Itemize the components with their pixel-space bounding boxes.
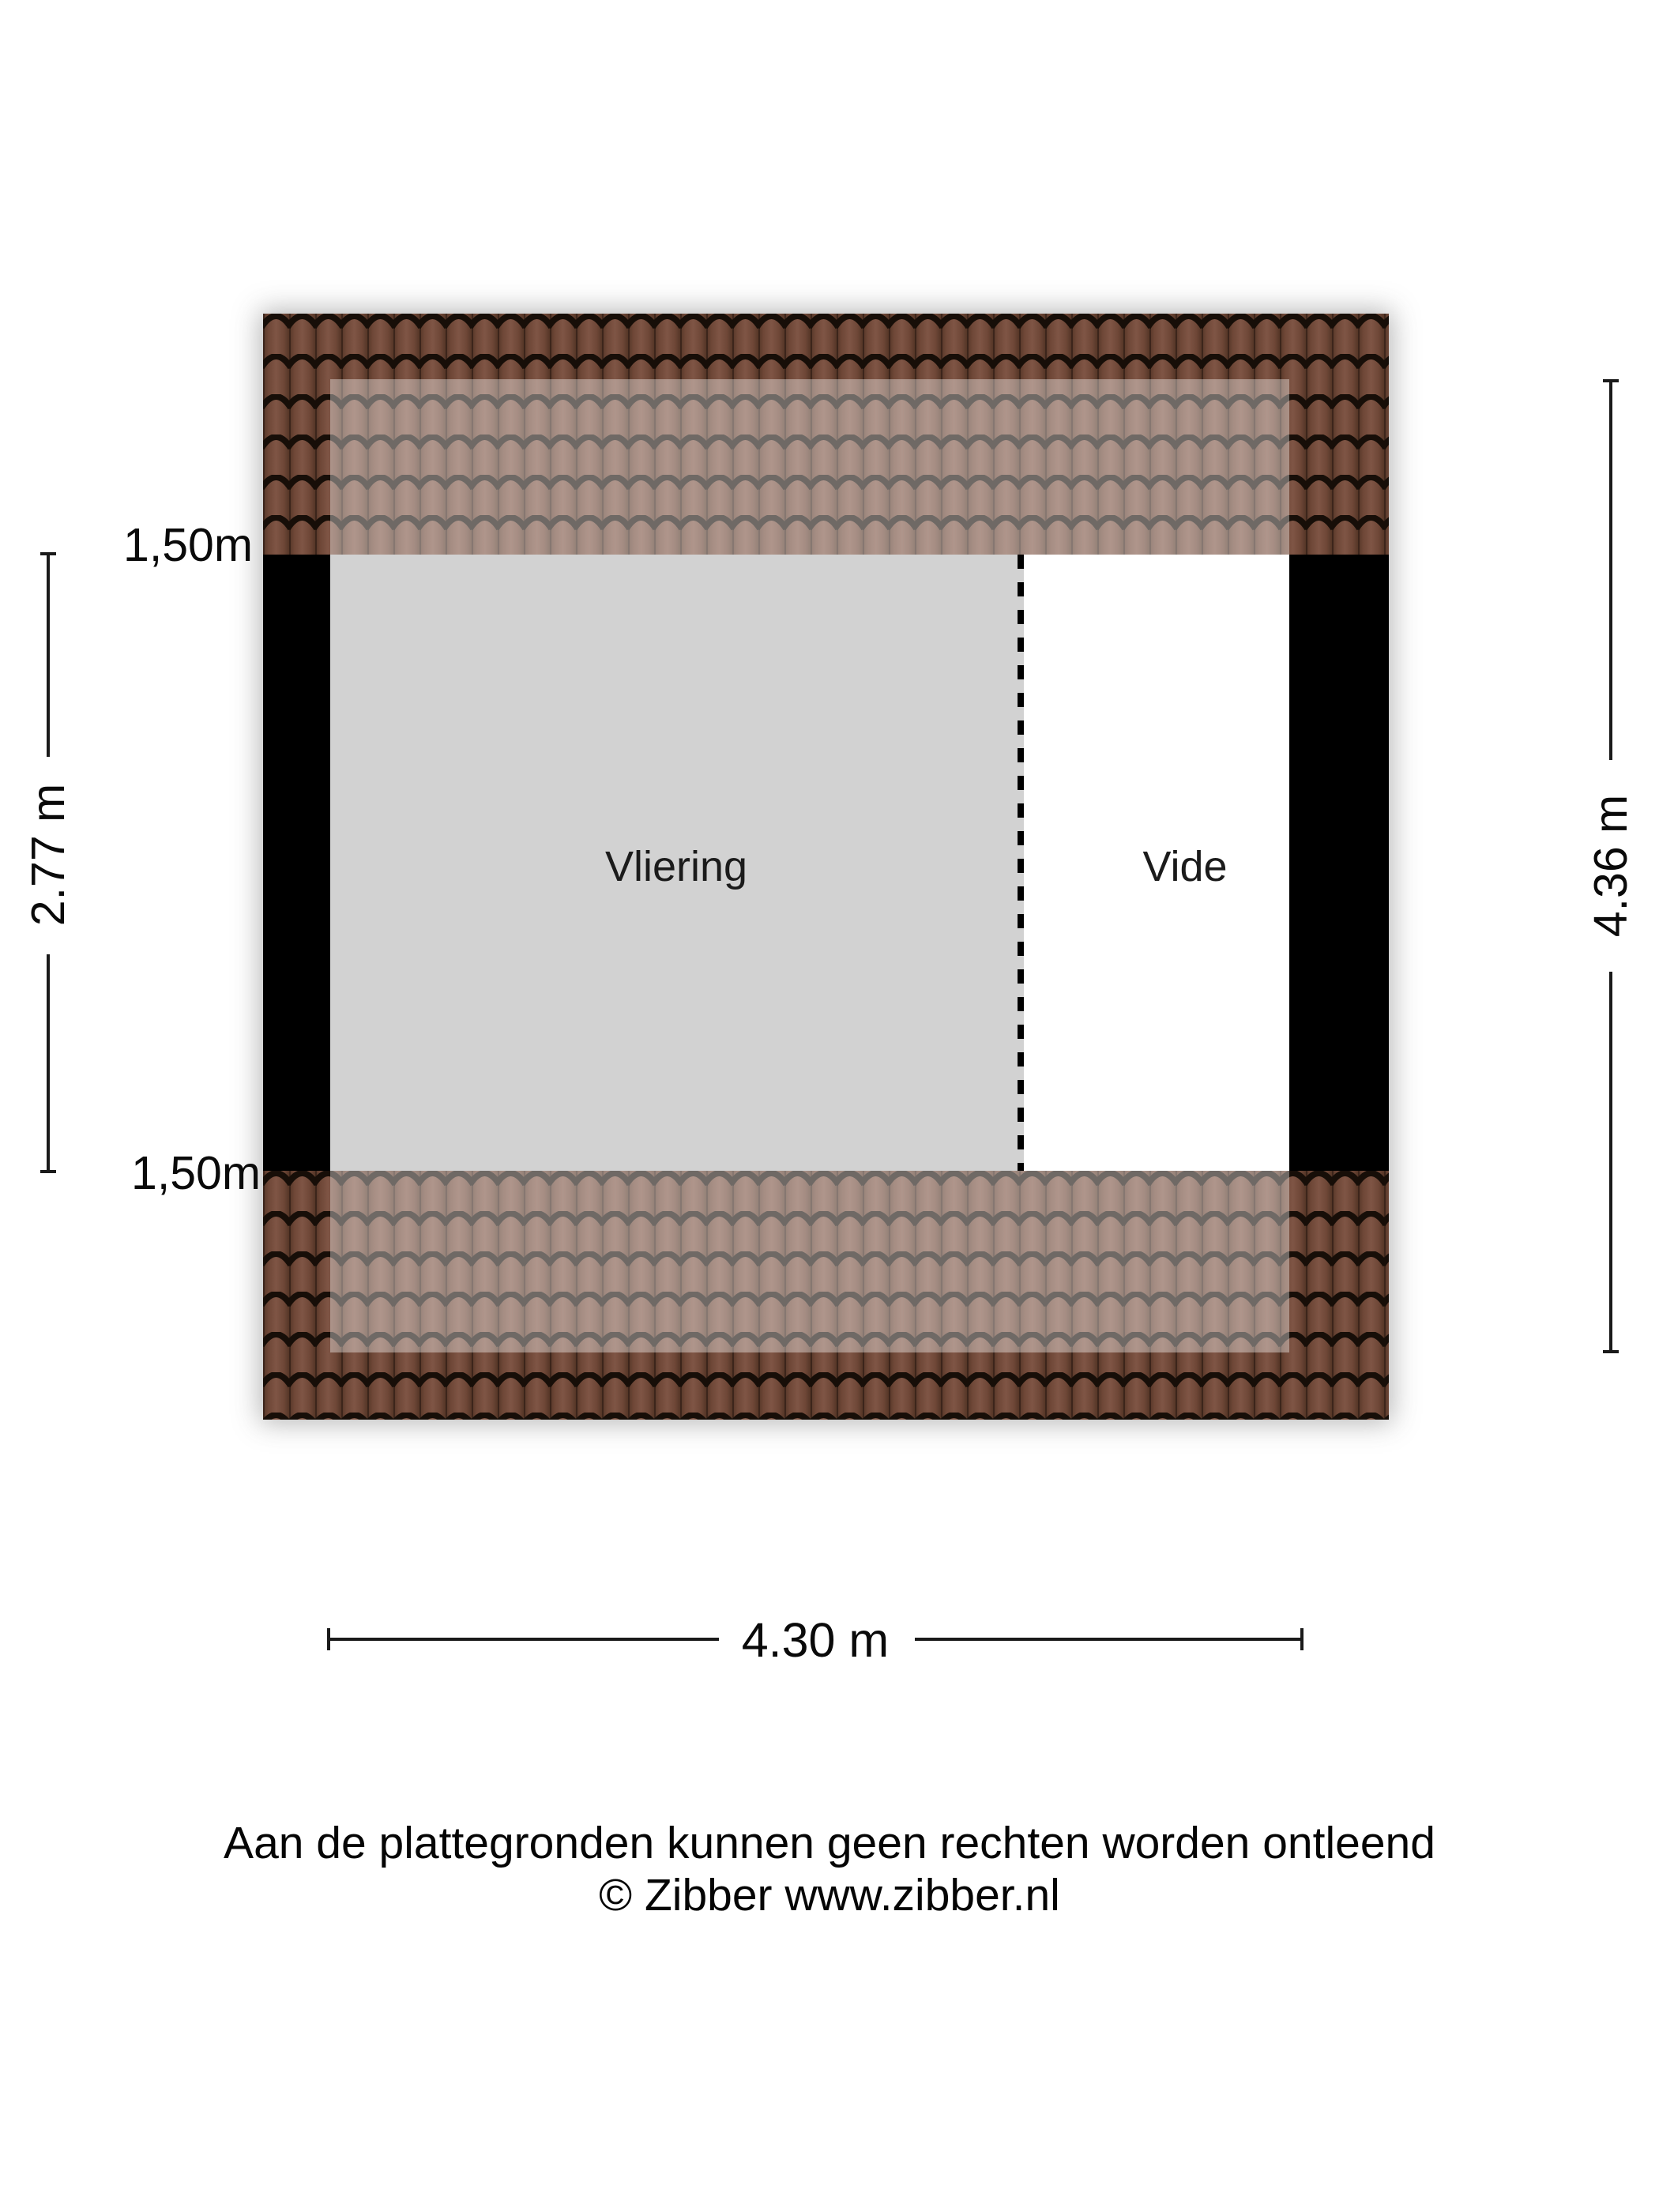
roof-slope-overlay-top	[330, 379, 1289, 555]
footer-disclaimer: Aan de plattegronden kunnen geen rechten…	[0, 1817, 1659, 1869]
dim-tick-right-top	[1603, 379, 1619, 382]
roof-tiles-top	[263, 314, 1389, 555]
dim-line-bottom-left-segment	[329, 1638, 719, 1641]
floorplan-page: Vliering Vide 1,50m 1,50m 2.77 m 4.36 m …	[0, 0, 1659, 2212]
dim-tick-left-top	[40, 552, 56, 555]
wall-right	[1289, 555, 1389, 1171]
room-vliering-label: Vliering	[605, 845, 747, 888]
dim-line-left-lower-segment	[47, 954, 50, 1172]
dim-tick-right-bottom	[1603, 1350, 1619, 1353]
roof-slope-overlay-bottom	[330, 1171, 1289, 1352]
vide-boundary-dashed-line	[1018, 555, 1024, 1171]
dim-line-left-upper-segment	[47, 554, 50, 757]
dim-total-width-label: 4.30 m	[742, 1616, 890, 1664]
dim-inner-depth-label: 2.77 m	[24, 784, 72, 926]
dim-tick-bottom-right	[1300, 1628, 1303, 1650]
dim-tick-bottom-left	[327, 1628, 330, 1650]
footer-copyright: © Zibber www.zibber.nl	[0, 1869, 1659, 1921]
floorplan: Vliering Vide	[263, 314, 1389, 1420]
dim-headroom-top-label: 1,50m	[123, 521, 253, 569]
dim-total-depth-label: 4.36 m	[1587, 795, 1635, 937]
dim-line-bottom-right-segment	[915, 1638, 1302, 1641]
roof-tiles-bottom	[263, 1171, 1389, 1420]
dim-line-right-lower-segment	[1609, 972, 1612, 1352]
room-vide-label: Vide	[1142, 845, 1227, 888]
wall-left	[263, 555, 330, 1171]
dim-headroom-bottom-label: 1,50m	[131, 1149, 261, 1197]
dim-line-right-upper-segment	[1609, 381, 1612, 760]
dim-tick-left-bottom	[40, 1170, 56, 1173]
